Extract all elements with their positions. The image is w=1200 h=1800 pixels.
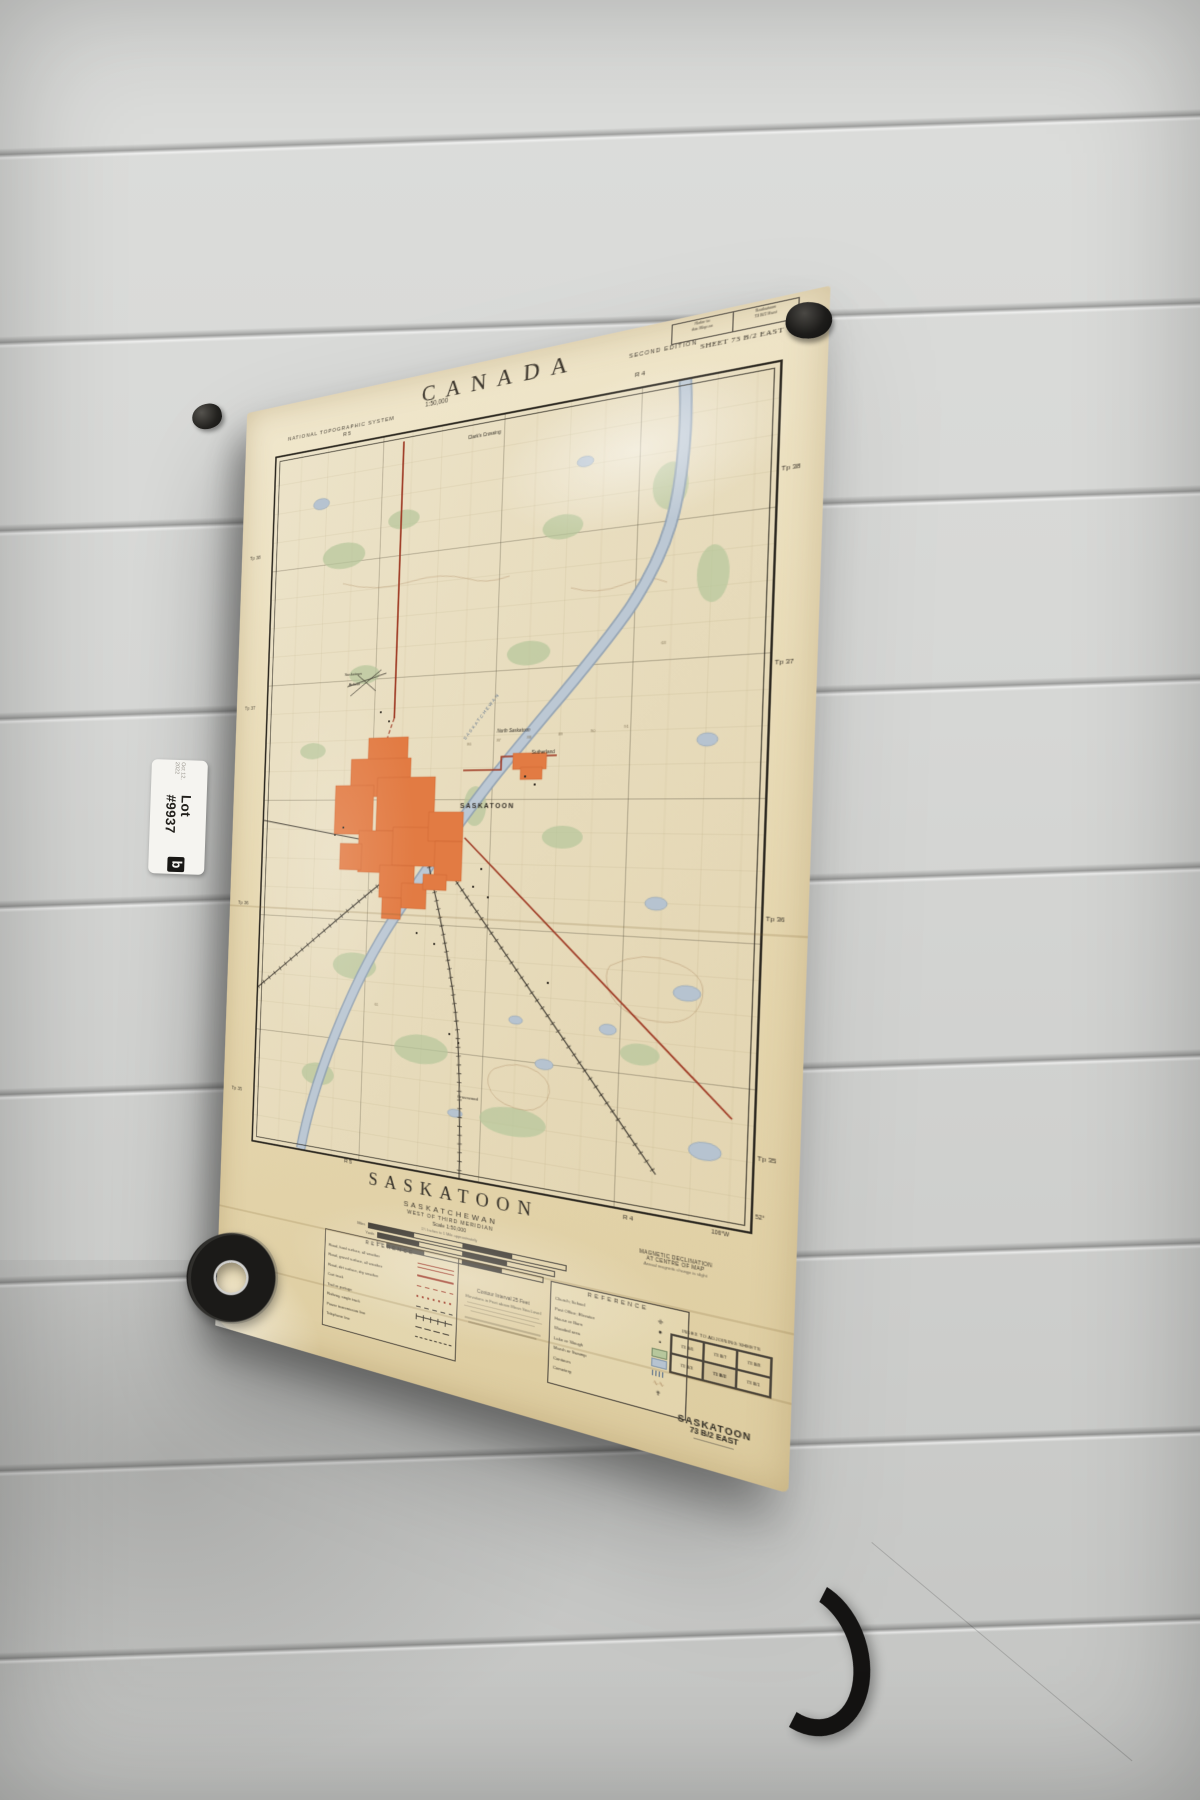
latitude-label: 52° — [755, 1214, 765, 1223]
grid-number: 61 — [374, 1002, 378, 1007]
map-poster-wrap: NATIONAL TOPOGRAPHIC SYSTEM 1:50,000 CAN… — [215, 286, 830, 1494]
township-label: Tp 37 — [775, 659, 794, 667]
declination-note: MAGNETIC DECLINATION AT CENTRE OF MAP An… — [606, 1242, 748, 1288]
longitude-label: 106°W — [711, 1229, 729, 1239]
map-sheet: NATIONAL TOPOGRAPHIC SYSTEM 1:50,000 CAN… — [215, 286, 830, 1494]
range-label-bottom-right: R 4 — [623, 1215, 633, 1223]
clip-bottom-right — [726, 1561, 890, 1752]
township-label: Tp 38 — [250, 555, 261, 562]
township-label: Tp 36 — [238, 900, 249, 906]
wall-seam-line — [871, 1542, 1132, 1761]
township-label: Tp 38 — [781, 463, 800, 473]
church-symbol: ✛ — [658, 1319, 664, 1327]
auction-lot-tag: Oct 12, 2022 Lot #9937 b — [148, 759, 208, 875]
township-label: Tp 35 — [757, 1156, 776, 1166]
grid-number: 90 — [591, 728, 596, 733]
range-label-top-right: R 4 — [635, 371, 645, 379]
contour-symbol: ∿∿ — [653, 1380, 665, 1390]
tag-date: Oct 12, 2022 — [173, 762, 186, 790]
grid-number: 89 — [558, 731, 563, 736]
marsh-symbol — [652, 1370, 666, 1379]
auction-photo: NATIONAL TOPOGRAPHIC SYSTEM 1:50,000 CAN… — [0, 0, 1200, 1800]
township-label: Tp 35 — [232, 1085, 243, 1092]
grid-number: 86 — [467, 741, 471, 746]
wall-groove — [0, 105, 1200, 162]
label-sutherland: Sutherland — [531, 750, 554, 756]
label-saskatoon-city: SASKATOON — [460, 803, 515, 810]
township-label: Tp 36 — [766, 917, 785, 925]
auctioneer-logo: b — [168, 857, 186, 873]
contour-notes: Contour Interval 25 Feet Elevations in F… — [461, 1285, 546, 1342]
grid-number: 63 — [661, 639, 666, 645]
grid-number: 88 — [527, 735, 532, 740]
post-office-symbol: ● — [658, 1329, 662, 1337]
grid-number: 91 — [624, 724, 629, 730]
magnet-top-left — [190, 401, 225, 432]
tag-content: Oct 12, 2022 Lot #9937 b — [150, 761, 206, 873]
grid-number: 87 — [497, 738, 501, 743]
township-grid — [253, 362, 780, 1231]
lot-number: Lot #9937 — [162, 794, 194, 852]
map-graphic — [253, 362, 780, 1231]
range-label-top-left: R 5 — [343, 431, 351, 438]
reference-legend-right: REFERENCE Church; School✛ Post Office; E… — [547, 1281, 690, 1421]
house-symbol: ▪ — [658, 1340, 661, 1347]
label-airfield-2: Airfield — [349, 681, 360, 686]
township-label: Tp 37 — [245, 706, 256, 712]
map-body: Clark's Crossing North Saskatoon Saskato… — [251, 359, 782, 1234]
corner-sheet-id: SASKATOON 73 B/2 EAST — [653, 1405, 777, 1462]
cemetery-symbol: ✝ — [655, 1391, 661, 1399]
